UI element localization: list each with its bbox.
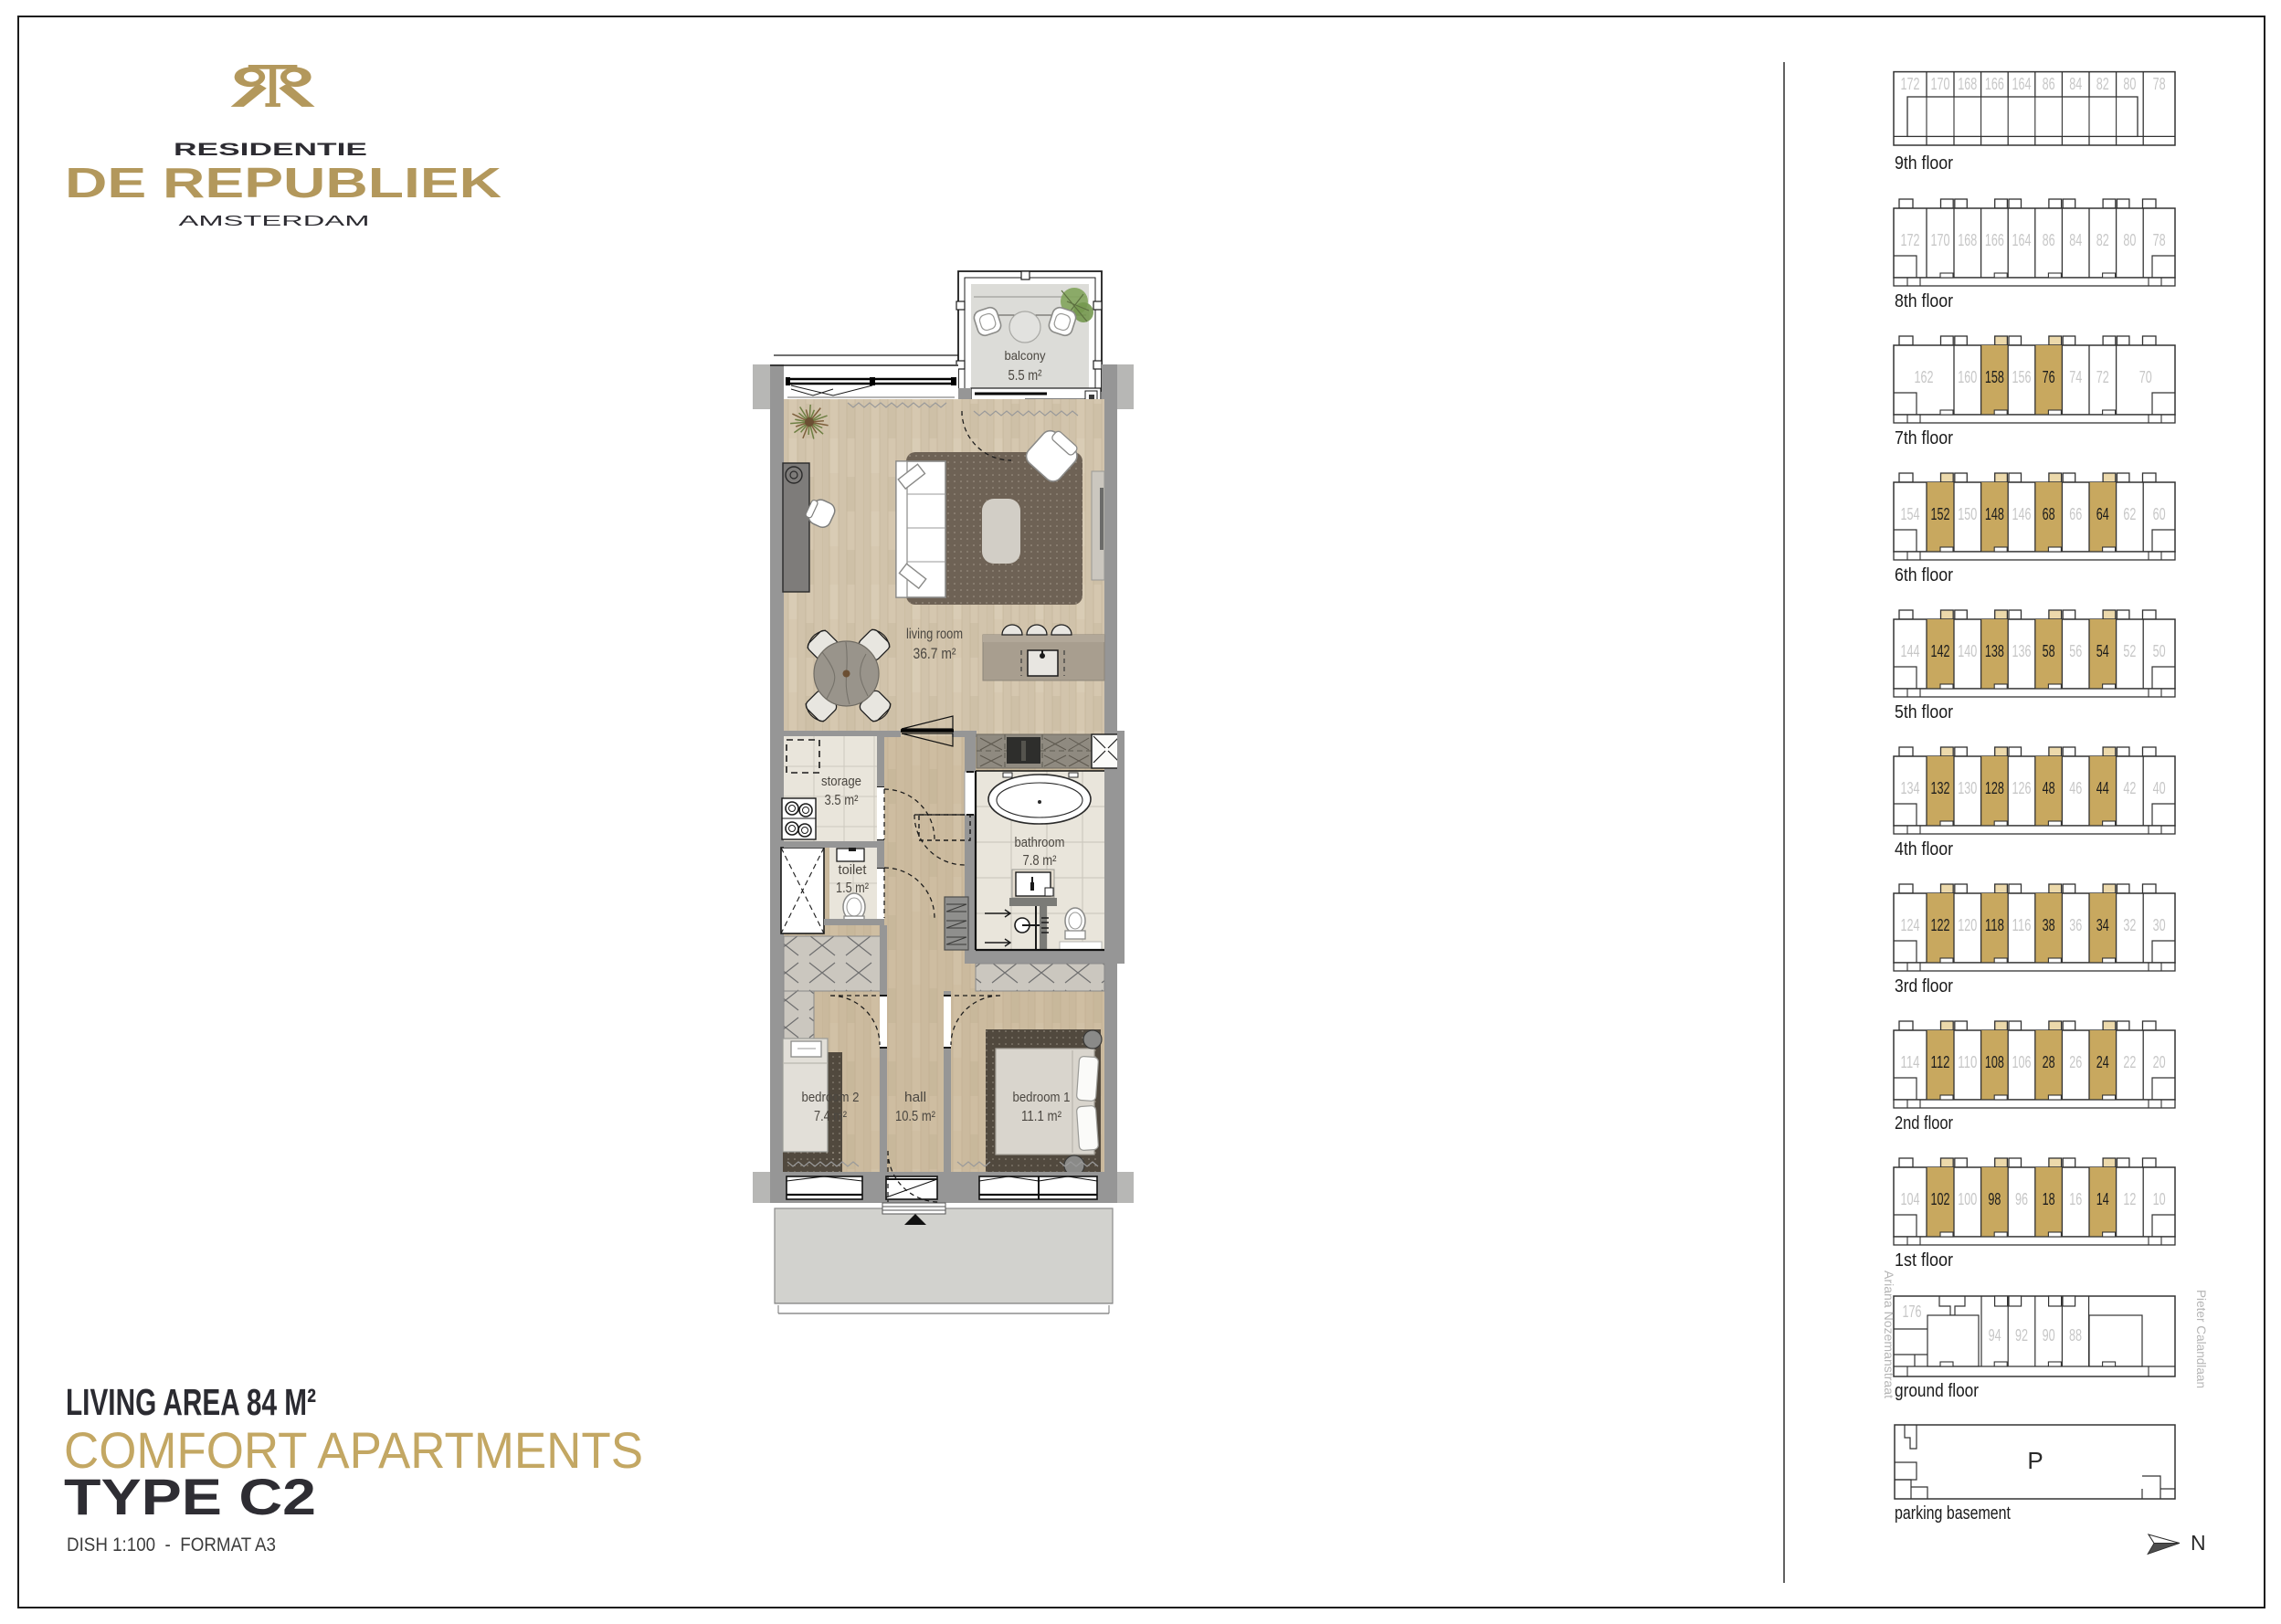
- svg-text:bedroom 2: bedroom 2: [802, 1090, 860, 1105]
- svg-text:7.4 m²: 7.4 m²: [814, 1109, 847, 1124]
- svg-text:16: 16: [2069, 1189, 2082, 1208]
- svg-text:150: 150: [1958, 504, 1977, 523]
- svg-text:6th floor: 6th floor: [1895, 565, 1953, 585]
- svg-text:34: 34: [2096, 915, 2109, 934]
- svg-text:5th floor: 5th floor: [1895, 702, 1953, 722]
- svg-text:P: P: [2027, 1447, 2043, 1474]
- svg-text:134: 134: [1901, 778, 1920, 797]
- svg-text:112: 112: [1931, 1052, 1950, 1071]
- svg-text:170: 170: [1931, 74, 1950, 93]
- svg-text:140: 140: [1958, 641, 1977, 660]
- svg-text:100: 100: [1958, 1189, 1977, 1208]
- svg-text:10: 10: [2153, 1189, 2166, 1208]
- svg-text:bathroom: bathroom: [1015, 836, 1065, 850]
- svg-text:48: 48: [2043, 778, 2055, 797]
- svg-text:60: 60: [2153, 504, 2166, 523]
- svg-text:110: 110: [1958, 1052, 1977, 1071]
- svg-text:98: 98: [1988, 1189, 2001, 1208]
- svg-text:9th floor: 9th floor: [1895, 153, 1953, 174]
- svg-text:78: 78: [2153, 230, 2166, 249]
- svg-text:Ariana Nozemanstraat: Ariana Nozemanstraat: [1882, 1271, 1896, 1398]
- svg-text:78: 78: [2153, 74, 2166, 93]
- svg-text:68: 68: [2043, 504, 2055, 523]
- svg-text:66: 66: [2069, 504, 2082, 523]
- svg-text:54: 54: [2096, 641, 2109, 660]
- svg-text:52: 52: [2123, 641, 2136, 660]
- svg-text:148: 148: [1985, 504, 2004, 523]
- svg-text:160: 160: [1958, 367, 1977, 386]
- svg-text:32: 32: [2123, 915, 2136, 934]
- svg-text:36.7 m²: 36.7 m²: [913, 645, 956, 662]
- svg-text:50: 50: [2153, 641, 2166, 660]
- svg-text:38: 38: [2043, 915, 2055, 934]
- svg-text:28: 28: [2043, 1052, 2055, 1071]
- svg-text:5.5 m²: 5.5 m²: [1008, 368, 1043, 384]
- svg-text:88: 88: [2069, 1325, 2082, 1345]
- svg-text:168: 168: [1958, 230, 1977, 249]
- svg-text:126: 126: [2012, 778, 2032, 797]
- svg-text:toilet: toilet: [839, 863, 867, 878]
- svg-text:124: 124: [1901, 915, 1920, 934]
- svg-text:2nd floor: 2nd floor: [1895, 1113, 1953, 1134]
- svg-text:132: 132: [1931, 778, 1950, 797]
- svg-text:72: 72: [2096, 367, 2109, 386]
- svg-text:164: 164: [2012, 230, 2032, 249]
- svg-text:90: 90: [2043, 1325, 2055, 1345]
- svg-text:TYPE C2: TYPE C2: [64, 1468, 316, 1525]
- svg-text:40: 40: [2153, 778, 2166, 797]
- svg-text:80: 80: [2123, 230, 2136, 249]
- svg-text:10.5 m²: 10.5 m²: [895, 1109, 935, 1124]
- svg-text:106: 106: [2012, 1052, 2032, 1071]
- svg-text:3.5 m²: 3.5 m²: [825, 793, 859, 808]
- svg-text:128: 128: [1985, 778, 2004, 797]
- svg-text:3rd floor: 3rd floor: [1895, 976, 1953, 997]
- svg-text:108: 108: [1985, 1052, 2004, 1071]
- svg-text:46: 46: [2069, 778, 2082, 797]
- svg-text:166: 166: [1985, 230, 2004, 249]
- svg-text:74: 74: [2069, 367, 2082, 386]
- svg-text:24: 24: [2096, 1052, 2109, 1071]
- svg-text:172: 172: [1901, 74, 1920, 93]
- svg-text:166: 166: [1985, 74, 2004, 93]
- svg-text:96: 96: [2015, 1189, 2028, 1208]
- svg-text:120: 120: [1958, 915, 1977, 934]
- svg-text:4th floor: 4th floor: [1895, 839, 1953, 859]
- svg-text:138: 138: [1985, 641, 2004, 660]
- svg-text:living room: living room: [906, 627, 963, 642]
- svg-text:8th floor: 8th floor: [1895, 291, 1953, 311]
- svg-text:44: 44: [2096, 778, 2109, 797]
- svg-text:bedroom 1: bedroom 1: [1013, 1090, 1071, 1105]
- svg-text:42: 42: [2123, 778, 2136, 797]
- svg-text:56: 56: [2069, 641, 2082, 660]
- svg-text:64: 64: [2096, 504, 2109, 523]
- svg-text:118: 118: [1985, 915, 2004, 934]
- svg-text:N: N: [2191, 1531, 2206, 1555]
- svg-text:80: 80: [2123, 74, 2136, 93]
- svg-text:156: 156: [2012, 367, 2032, 386]
- svg-text:14: 14: [2096, 1189, 2109, 1208]
- svg-text:152: 152: [1931, 504, 1950, 523]
- svg-text:168: 168: [1958, 74, 1977, 93]
- svg-text:136: 136: [2012, 641, 2032, 660]
- svg-text:104: 104: [1901, 1189, 1920, 1208]
- svg-text:82: 82: [2096, 230, 2109, 249]
- svg-text:1.5 m²: 1.5 m²: [836, 881, 869, 896]
- svg-text:102: 102: [1931, 1189, 1950, 1208]
- svg-text:hall: hall: [904, 1090, 926, 1105]
- svg-text:144: 144: [1901, 641, 1920, 660]
- svg-text:30: 30: [2153, 915, 2166, 934]
- svg-text:154: 154: [1901, 504, 1920, 523]
- svg-text:76: 76: [2043, 367, 2055, 386]
- svg-text:82: 82: [2096, 74, 2109, 93]
- svg-text:11.1 m²: 11.1 m²: [1021, 1109, 1061, 1124]
- svg-text:142: 142: [1931, 641, 1950, 660]
- svg-text:130: 130: [1958, 778, 1977, 797]
- svg-text:164: 164: [2012, 74, 2032, 93]
- svg-text:ground floor: ground floor: [1895, 1381, 1979, 1401]
- svg-text:122: 122: [1931, 915, 1950, 934]
- svg-text:20: 20: [2153, 1052, 2166, 1071]
- svg-text:balcony: balcony: [1005, 349, 1046, 363]
- svg-text:146: 146: [2012, 504, 2032, 523]
- svg-text:storage: storage: [821, 775, 861, 789]
- svg-text:DE REPUBLIEK: DE REPUBLIEK: [65, 159, 502, 206]
- svg-text:1st floor: 1st floor: [1895, 1250, 1953, 1271]
- svg-text:RESIDENTIE: RESIDENTIE: [174, 140, 367, 160]
- svg-text:36: 36: [2069, 915, 2082, 934]
- svg-text:parking basement: parking basement: [1895, 1503, 2011, 1524]
- svg-text:7.8 m²: 7.8 m²: [1023, 853, 1057, 869]
- svg-text:62: 62: [2123, 504, 2136, 523]
- svg-text:170: 170: [1931, 230, 1950, 249]
- svg-text:7th floor: 7th floor: [1895, 428, 1953, 448]
- svg-text:94: 94: [1989, 1325, 2001, 1345]
- svg-text:58: 58: [2043, 641, 2055, 660]
- svg-text:12: 12: [2123, 1189, 2136, 1208]
- svg-text:116: 116: [2012, 915, 2032, 934]
- svg-text:18: 18: [2043, 1189, 2055, 1208]
- svg-text:LIVING AREA 84 M²: LIVING AREA 84 M²: [66, 1381, 316, 1423]
- svg-text:Pieter Calandlaan: Pieter Calandlaan: [2194, 1290, 2208, 1388]
- svg-text:84: 84: [2069, 74, 2082, 93]
- svg-text:162: 162: [1915, 367, 1934, 386]
- svg-text:DISH 1:100 - FORMAT A3: DISH 1:100 - FORMAT A3: [67, 1534, 276, 1555]
- svg-text:176: 176: [1903, 1302, 1922, 1321]
- svg-text:172: 172: [1901, 230, 1920, 249]
- svg-text:26: 26: [2069, 1052, 2082, 1071]
- svg-text:22: 22: [2123, 1052, 2136, 1071]
- svg-text:70: 70: [2139, 367, 2152, 386]
- svg-text:114: 114: [1901, 1052, 1920, 1071]
- svg-text:158: 158: [1985, 367, 2004, 386]
- svg-text:84: 84: [2069, 230, 2082, 249]
- svg-text:86: 86: [2043, 230, 2055, 249]
- svg-text:92: 92: [2015, 1325, 2028, 1345]
- svg-text:AMSTERDAM: AMSTERDAM: [179, 214, 370, 229]
- svg-text:86: 86: [2043, 74, 2055, 93]
